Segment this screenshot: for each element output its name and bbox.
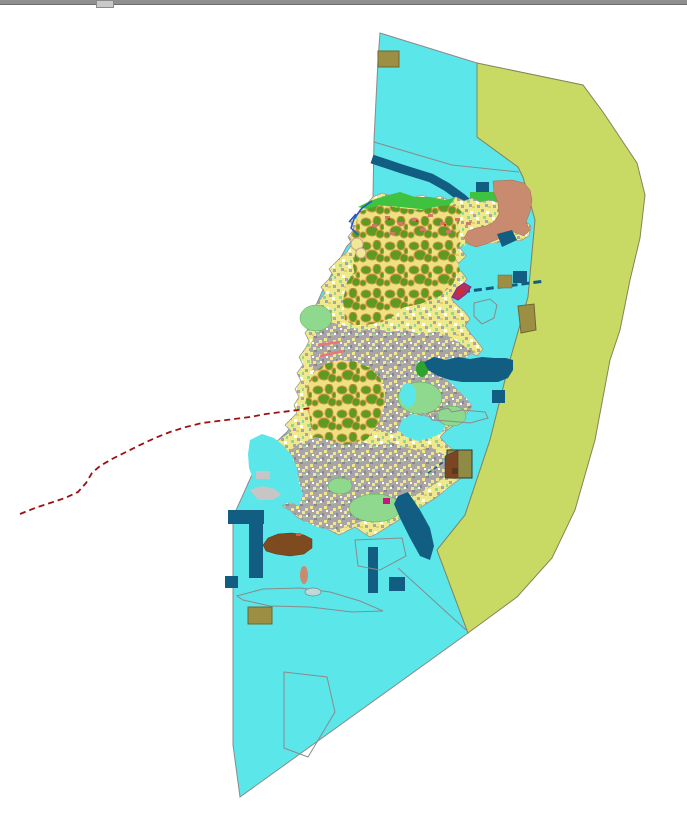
navy-quay-west-sq[interactable] (225, 576, 238, 588)
village-dot (420, 228, 425, 231)
khaki-plot-southwest[interactable] (248, 607, 272, 624)
village-dot (390, 232, 395, 235)
splitter-handle[interactable] (96, 0, 114, 8)
map-viewport[interactable] (0, 0, 687, 821)
gray-islet (305, 588, 321, 596)
inlet-east (400, 383, 416, 407)
facility-inner-dark (452, 468, 458, 474)
map-application-window (0, 0, 687, 821)
khaki-plot-east-large[interactable] (518, 304, 536, 333)
navy-plot-harbor-small[interactable] (492, 390, 505, 403)
navy-plot-east-small[interactable] (513, 271, 527, 283)
navy-pier-south-sq[interactable] (389, 577, 405, 591)
navy-quay-west-h[interactable] (228, 510, 264, 524)
red-dot (388, 218, 390, 220)
red-dot (416, 220, 418, 222)
village-dot (428, 214, 433, 217)
khaki-plot-north[interactable] (378, 51, 399, 67)
salmon-islet (300, 566, 308, 584)
cove-circle (356, 248, 366, 258)
window-top-splitter-bar[interactable] (0, 0, 687, 5)
khaki-plot-east-small[interactable] (498, 275, 512, 288)
village-dot (372, 224, 377, 227)
meadow-patch (300, 305, 332, 331)
meadow-patch (349, 494, 401, 522)
navy-pier-south-bar[interactable] (368, 547, 378, 593)
village-dot (446, 230, 451, 233)
map-canvas[interactable] (0, 0, 687, 821)
village-dot (455, 218, 460, 221)
village-dot (466, 222, 471, 225)
village-dot (398, 222, 403, 225)
red-dot (444, 224, 446, 226)
navy-quay-west-v[interactable] (249, 524, 263, 578)
meadow-patch (328, 478, 352, 494)
feature-layer (20, 33, 645, 797)
reclaimed-edge-speck (296, 533, 301, 536)
flats-patch (256, 471, 270, 479)
magenta-marker-south (383, 498, 390, 504)
navy-plot-ne-small[interactable] (476, 182, 489, 192)
port-symbol-red (458, 290, 463, 294)
